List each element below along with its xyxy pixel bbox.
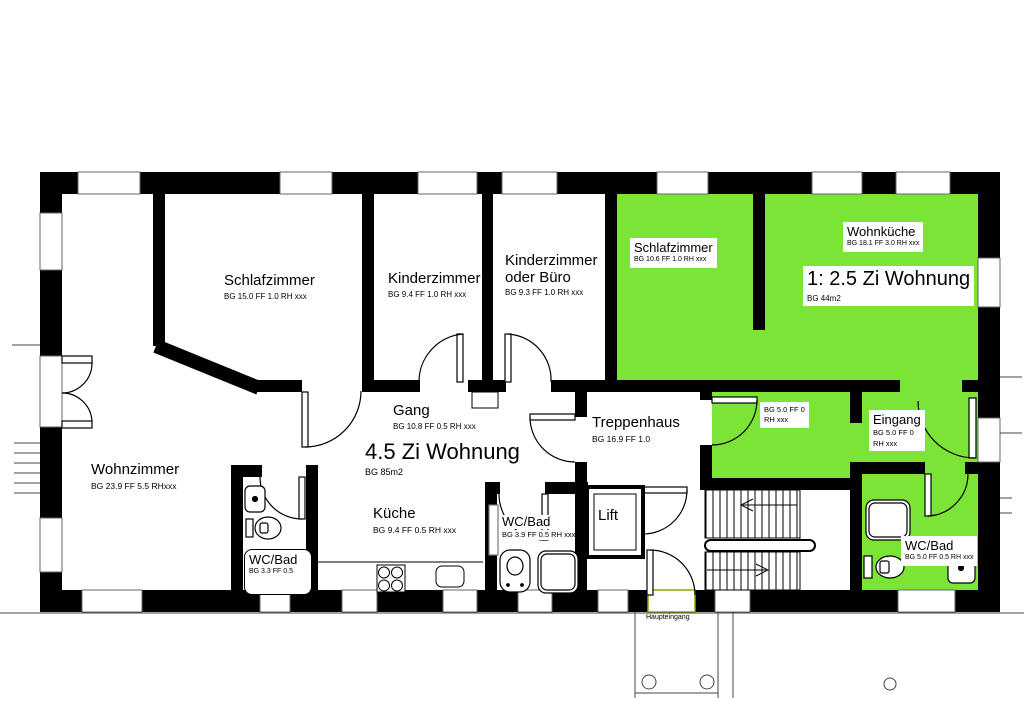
exterior-steps-left (12, 345, 40, 493)
stair-handrail (705, 540, 815, 551)
room-name: Kinderzimmer (388, 271, 481, 288)
room-name: Lift (598, 508, 618, 525)
room-name: Schlafzimmer (224, 273, 315, 290)
room-info: RH xxx (873, 439, 921, 448)
room-label-wc-bad-gang: WC/Bad BG 3.9 FF 0.5 RH xxx (502, 515, 575, 540)
room-label-wohnkueche: Wohnküche BG 18.1 FF 3.0 RH xxx (843, 222, 923, 252)
apartment-45-title: 4.5 Zi Wohnung BG 85m2 (365, 440, 520, 477)
room-info: BG 10.8 FF 0.5 RH xxx (393, 422, 476, 432)
room-name: Treppenhaus (592, 415, 680, 432)
main-entrance-label: Haupteingang (646, 614, 690, 621)
room-info: BG 3.3 FF 0.5 (249, 568, 307, 577)
toilet-icon (864, 556, 872, 578)
room-label-kueche: Küche BG 9.4 FF 0.5 RH xxx (373, 506, 456, 535)
apartment-area: BG 85m2 (365, 467, 520, 477)
room-label-schlafzimmer-45: Schlafzimmer BG 15.0 FF 1.0 RH xxx (224, 273, 315, 302)
porch-column (642, 675, 656, 689)
room-label-gang: Gang BG 10.8 FF 0.5 RH xxx (393, 403, 476, 432)
room-info: RH xxx (764, 415, 805, 424)
room-info: BG 10.6 FF 1.0 RH xxx (634, 256, 713, 265)
room-info: BG 5.0 FF 0.5 RH xxx (905, 554, 973, 563)
niche (489, 505, 498, 555)
room-name: WC/Bad (502, 515, 575, 529)
room-name: WC/Bad (905, 539, 973, 553)
room-label-wc-bad-25: WC/Bad BG 5.0 FF 0.5 RH xxx (901, 536, 977, 566)
room-name: Wohnzimmer (91, 462, 179, 479)
sink-icon (436, 566, 464, 587)
apartment-25-title: 1: 2.5 Zi Wohnung BG 44m2 (803, 266, 974, 306)
room-name: Kinderzimmer oder Büro (505, 253, 605, 286)
room-label-eingang: Eingang BG 5.0 FF 0 RH xxx (869, 410, 925, 451)
room-label-wohnzimmer: Wohnzimmer BG 23.9 FF 5.5 RHxxx (91, 462, 179, 491)
shaft (472, 392, 498, 408)
vestibule-door-opening (700, 400, 712, 445)
room-info: BG 15.0 FF 1.0 RH xxx (224, 292, 315, 302)
toilet-icon (246, 519, 253, 537)
room-name: Gang (393, 403, 476, 420)
exterior-column (884, 678, 896, 690)
room-label-lift: Lift (598, 508, 618, 525)
main-entrance-opening (648, 590, 695, 612)
room-label-schlafzimmer-25: Schlafzimmer BG 10.6 FF 1.0 RH xxx (630, 238, 717, 268)
entrance-porch (635, 612, 733, 698)
room-info: BG 9.4 FF 0.5 RH xxx (373, 525, 456, 536)
apartment-title: 1: 2.5 Zi Wohnung (807, 269, 970, 290)
room-info: BG 5.0 FF 0 (764, 405, 805, 414)
room-info: BG 3.9 FF 0.5 RH xxx (502, 530, 575, 539)
room-info: BG 23.9 FF 5.5 RHxxx (91, 481, 179, 492)
exterior-steps-right (1000, 377, 1022, 513)
porch-column (700, 675, 714, 689)
apartment-area: BG 44m2 (807, 294, 970, 303)
room-label-wc-bad-klein: WC/Bad BG 3.3 FF 0.5 (244, 549, 312, 595)
floor-plan-drawing (0, 0, 1024, 724)
room-info: BG 16.9 FF 1.0 (592, 434, 680, 445)
room-name: Wohnküche (847, 225, 919, 239)
room-name: Küche (373, 506, 456, 523)
room-name: Schlafzimmer (634, 241, 713, 255)
room-name: WC/Bad (249, 553, 307, 567)
room-label-treppenhaus: Treppenhaus BG 16.9 FF 1.0 (592, 415, 680, 444)
room-label-vorraum: BG 5.0 FF 0 RH xxx (760, 402, 809, 428)
room-info: BG 9.4 FF 1.0 RH xxx (388, 290, 481, 300)
room-label-kinderzimmer: Kinderzimmer BG 9.4 FF 1.0 RH xxx (388, 271, 481, 300)
floor-plan: Schlafzimmer BG 15.0 FF 1.0 RH xxx Kinde… (0, 0, 1024, 724)
room-name: Eingang (873, 413, 921, 427)
room-info: BG 18.1 FF 3.0 RH xxx (847, 240, 919, 249)
room-info: BG 9.3 FF 1.0 RH xxx (505, 288, 605, 298)
room-label-kinderzimmer-buero: Kinderzimmer oder Büro BG 9.3 FF 1.0 RH … (505, 253, 605, 298)
apartment-title: 4.5 Zi Wohnung (365, 440, 520, 463)
room-info: BG 5.0 FF 0 (873, 428, 921, 437)
